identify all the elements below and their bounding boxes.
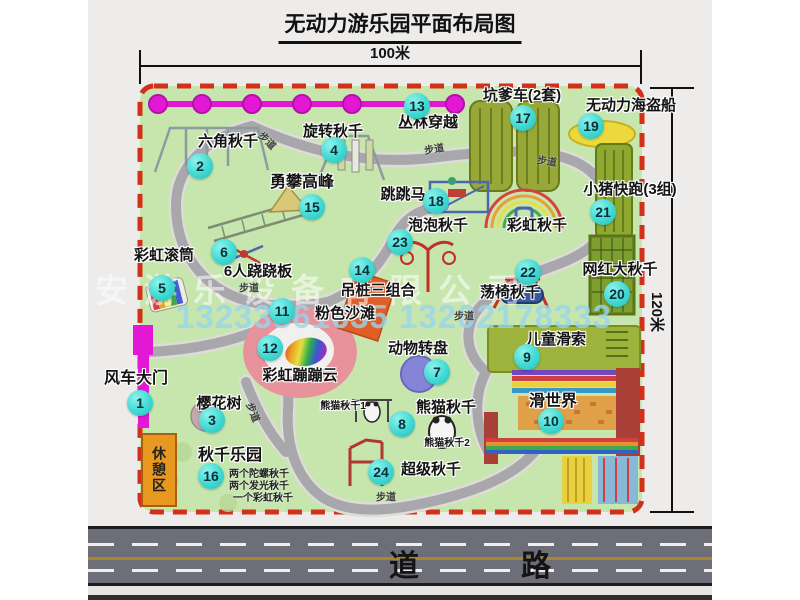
marker-circle-17: 17 <box>510 105 536 131</box>
marker-label-21: 小猪快跑(3组) <box>583 182 676 198</box>
marker-circle-15: 15 <box>299 194 325 220</box>
marker-label-24: 超级秋千 <box>401 462 461 478</box>
marker-circle-20: 20 <box>604 281 630 307</box>
label-panda-swing-1: 熊猫秋千1 <box>320 402 366 413</box>
marker-circle-1: 1 <box>127 390 153 416</box>
photo-bottom-border <box>88 595 712 600</box>
marker-circle-22: 22 <box>515 259 541 285</box>
marker-circle-19: 19 <box>578 113 604 139</box>
label-panda-swing-2: 熊猫秋千2 <box>424 439 470 450</box>
marker-label-14: 吊桩三组合 <box>340 283 415 299</box>
marker-circle-14: 14 <box>349 257 375 283</box>
marker-circle-23: 23 <box>387 229 413 255</box>
marker-circle-21: 21 <box>590 199 616 225</box>
marker-label-20: 网红大秋千 <box>582 262 657 278</box>
marker-circle-7: 7 <box>424 359 450 385</box>
marker-circle-5: 5 <box>149 275 175 301</box>
marker-label-6: 6人跷跷板 <box>224 264 292 280</box>
marker-label-19: 无动力海盗船 <box>586 98 676 114</box>
marker-circle-12: 12 <box>257 335 283 361</box>
walk-path-tag-6: 步道 <box>376 489 396 504</box>
marker-label-13: 丛林穿越 <box>398 115 458 131</box>
marker-circle-18: 18 <box>423 188 449 214</box>
marker-circle-10: 10 <box>538 408 564 434</box>
screenshot-root: 无动力游乐园平面布局图 100米 120米 <box>0 0 800 600</box>
marker-label-7: 动物转盘 <box>388 341 448 357</box>
marker-label-17: 坑爹车(2套) <box>483 88 561 104</box>
marker-circle-13: 13 <box>404 93 430 119</box>
marker-label-11: 粉色沙滩 <box>315 306 375 322</box>
marker-circle-4: 4 <box>321 137 347 163</box>
marker-circle-2: 2 <box>187 153 213 179</box>
label-rainbow-swing: 彩虹秋千 <box>507 218 567 234</box>
marker-circle-11: 11 <box>269 298 295 324</box>
marker-label-23: 泡泡秋千 <box>408 218 468 234</box>
marker-circle-9: 9 <box>514 344 540 370</box>
walk-path-tag-3: 步道 <box>536 151 558 169</box>
marker-label-12: 彩虹蹦蹦云 <box>262 368 337 384</box>
marker-circle-8: 8 <box>389 411 415 437</box>
walk-path-tag-4: 步道 <box>239 280 259 295</box>
swing-note-3: 一个彩虹秋千 <box>233 489 293 504</box>
marker-circle-6: 6 <box>211 239 237 265</box>
marker-label-8: 熊猫秋千 <box>416 400 476 416</box>
below-road-strip <box>88 586 712 595</box>
road: 道 路 <box>88 526 712 586</box>
rest-area-box: 休憩区 <box>141 433 177 507</box>
marker-label-2: 六角秋千 <box>198 134 258 150</box>
marker-label-22: 荡椅秋千 <box>480 285 540 301</box>
walk-path-tag-7: 步道 <box>454 308 474 323</box>
marker-label-5: 彩虹滚筒 <box>134 248 194 264</box>
marker-circle-24: 24 <box>368 459 394 485</box>
marker-label-15: 勇攀高峰 <box>270 175 334 192</box>
marker-circle-3: 3 <box>199 407 225 433</box>
marker-label-1: 风车大门 <box>104 371 168 388</box>
marker-label-18: 跳跳马 <box>380 187 425 203</box>
road-label: 道 路 <box>389 541 587 585</box>
marker-circle-16: 16 <box>198 463 224 489</box>
marker-label-9: 儿童滑索 <box>526 332 586 348</box>
